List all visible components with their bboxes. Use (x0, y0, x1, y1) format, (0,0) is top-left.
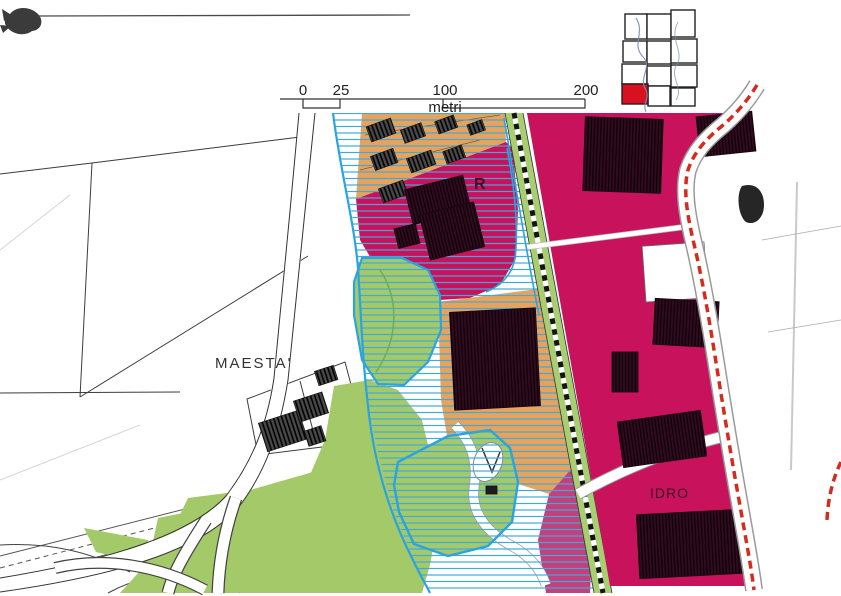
scale-tick-25: 25 (333, 82, 350, 99)
scale-unit-label: metri (428, 99, 461, 116)
scale-tick-200: 200 (573, 82, 598, 99)
scale-tick-100: 100 (432, 82, 457, 99)
locality-label: MAESTA' (215, 355, 292, 372)
zone-idro-label: IDRO (650, 485, 689, 501)
zoning-map: MAESTA' R IDRO 0 25 100 200 metri (0, 0, 841, 596)
scale-tick-0: 0 (299, 82, 307, 99)
index-map (622, 10, 697, 112)
plan-sheet: Elaborato P.O.3 rapporto 1:2.000 Firmato… (0, 0, 841, 596)
zone-r-label: R (474, 176, 486, 193)
